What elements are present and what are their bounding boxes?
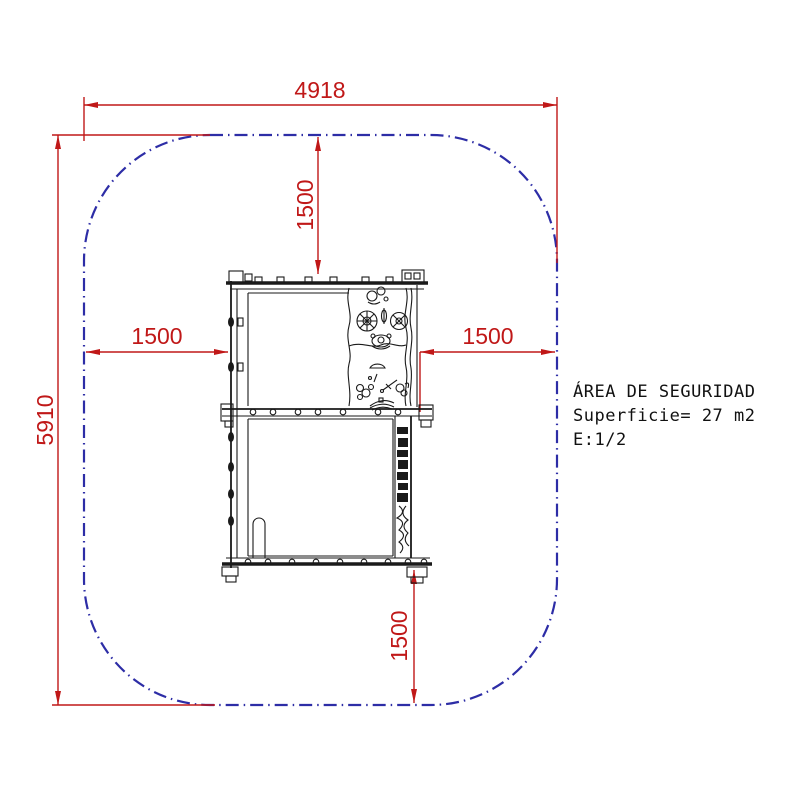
dim-clearance-bottom-label: 1500 [386, 610, 412, 661]
drawing-canvas: 4918 5910 1500 1500 1500 1500 [0, 0, 800, 800]
right-wall-grips [395, 416, 411, 558]
dim-clearance-top-label: 1500 [292, 179, 318, 230]
dim-clearance-right-label: 1500 [462, 323, 513, 349]
middle-rail [221, 404, 433, 427]
info-title: ÁREA DE SEGURIDAD [573, 380, 756, 402]
safety-boundary-outline [84, 135, 557, 705]
playground-equipment [221, 270, 433, 583]
dimension-total-width: 4918 [84, 77, 557, 263]
dimension-clearance-top: 1500 [292, 137, 321, 274]
safety-boundary [84, 135, 557, 705]
safety-area-drawing: 4918 5910 1500 1500 1500 1500 [0, 0, 800, 800]
dimension-clearance-left: 1500 [86, 323, 228, 355]
dimension-clearance-bottom: 1500 [386, 570, 417, 703]
bottom-rail [222, 558, 432, 583]
info-surface: Superficie= 27 m2 [573, 406, 756, 426]
info-panel: ÁREA DE SEGURIDAD Superficie= 27 m2 E:1/… [573, 380, 756, 450]
panel-doodles [357, 287, 409, 410]
dimension-clearance-right: 1500 [420, 323, 555, 412]
dim-total-width-label: 4918 [294, 77, 345, 103]
dim-total-height-label: 5910 [32, 394, 58, 445]
decorated-panel [348, 285, 417, 407]
access-panel [253, 518, 265, 558]
dimension-total-height: 5910 [32, 135, 215, 705]
info-scale: E:1/2 [573, 430, 627, 450]
dim-clearance-left-label: 1500 [131, 323, 182, 349]
